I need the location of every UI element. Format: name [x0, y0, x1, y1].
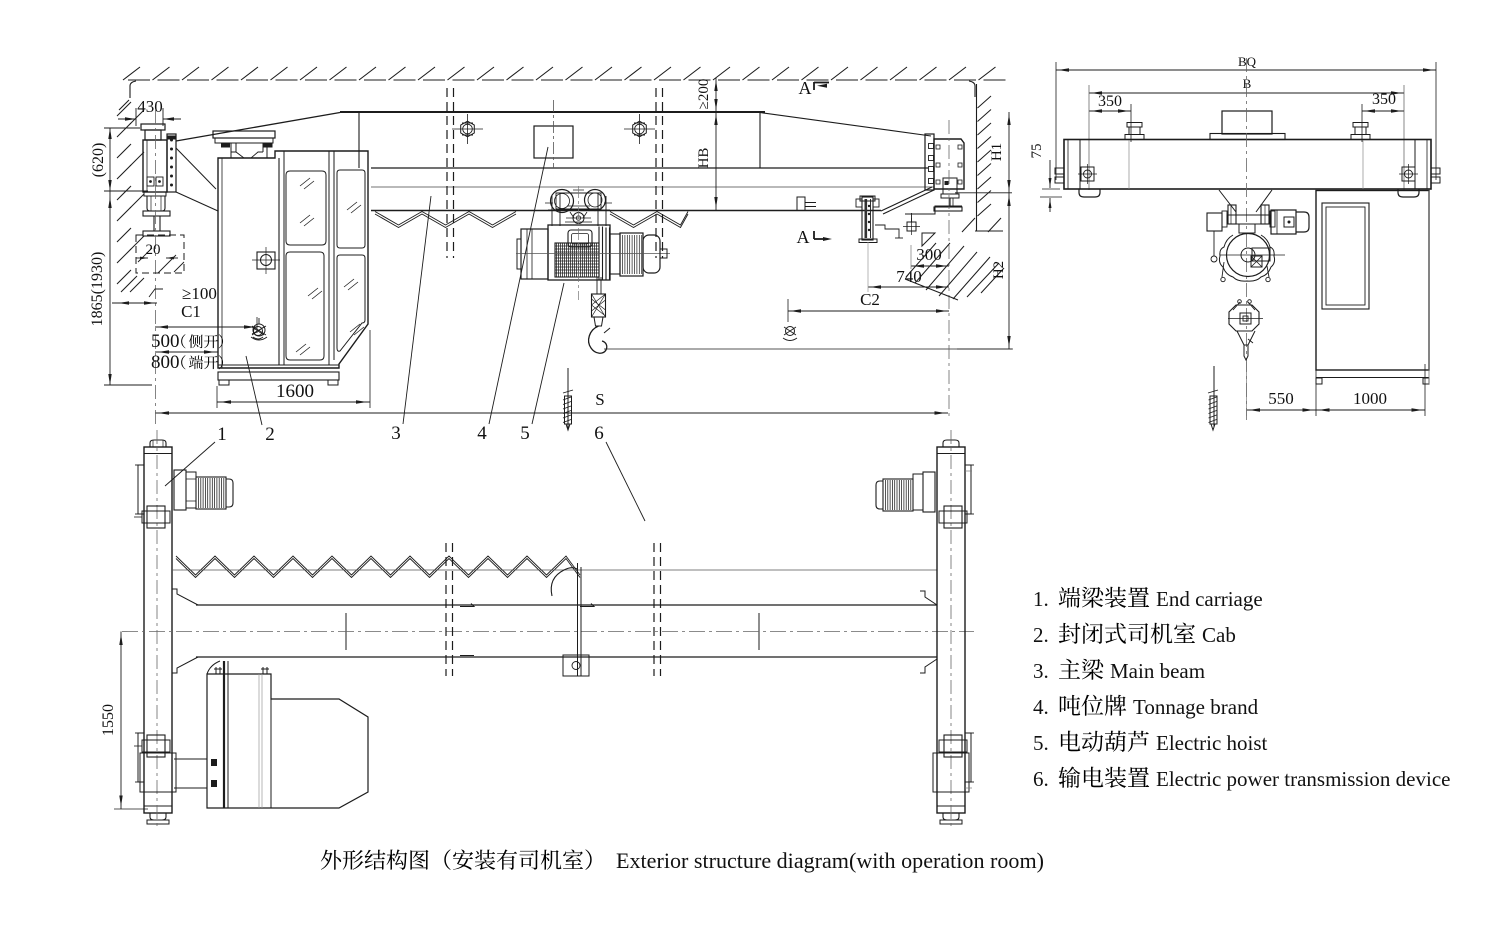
svg-text:H1: H1 [989, 143, 1005, 161]
svg-text:BQ: BQ [1238, 54, 1257, 69]
svg-text:A: A [797, 227, 810, 247]
svg-text:6.: 6. [1033, 767, 1049, 791]
svg-text:740: 740 [896, 267, 922, 286]
svg-text:1: 1 [217, 424, 227, 445]
svg-text:4.: 4. [1033, 695, 1049, 719]
svg-text:S: S [595, 390, 604, 409]
svg-text:3.: 3. [1033, 659, 1049, 683]
svg-text:5: 5 [520, 423, 530, 444]
svg-text:6: 6 [594, 423, 604, 444]
svg-text:1.: 1. [1033, 587, 1049, 611]
svg-text:B: B [1243, 76, 1252, 91]
svg-text:Exterior structure diagram(wit: Exterior structure diagram(with operatio… [616, 848, 1044, 873]
svg-text:≥100: ≥100 [182, 284, 217, 303]
svg-text:≥200: ≥200 [696, 79, 712, 110]
svg-text:350: 350 [1372, 91, 1396, 108]
svg-text:350: 350 [1098, 93, 1122, 110]
svg-text:End carriage: End carriage [1156, 587, 1263, 611]
svg-text:20: 20 [146, 242, 161, 258]
svg-text:Electric power transmission de: Electric power transmission device [1156, 767, 1450, 791]
svg-text:1000: 1000 [1353, 389, 1387, 408]
svg-text:75: 75 [1029, 144, 1045, 159]
svg-text:Tonnage brand: Tonnage brand [1133, 695, 1259, 719]
svg-text:Main beam: Main beam [1110, 659, 1205, 683]
svg-text:Electric hoist: Electric hoist [1156, 731, 1268, 755]
svg-text:C1: C1 [181, 302, 201, 321]
svg-text:1550: 1550 [100, 704, 117, 736]
svg-text:550: 550 [1268, 389, 1294, 408]
svg-text:C2: C2 [860, 290, 880, 309]
svg-text:2: 2 [265, 424, 275, 445]
svg-text:HB: HB [696, 148, 712, 169]
svg-text:4: 4 [477, 423, 487, 444]
svg-text:1865(1930): 1865(1930) [89, 252, 106, 327]
svg-text:500: 500 [151, 331, 180, 352]
svg-text:430: 430 [137, 97, 163, 116]
svg-text:H2: H2 [991, 261, 1007, 279]
svg-text:A: A [799, 78, 812, 98]
svg-text:3: 3 [391, 423, 401, 444]
svg-text:2.: 2. [1033, 623, 1049, 647]
svg-text:Cab: Cab [1202, 623, 1236, 647]
svg-text:800: 800 [151, 352, 180, 373]
svg-text:5.: 5. [1033, 731, 1049, 755]
svg-text:(620): (620) [90, 143, 107, 178]
svg-text:1600: 1600 [276, 381, 314, 402]
